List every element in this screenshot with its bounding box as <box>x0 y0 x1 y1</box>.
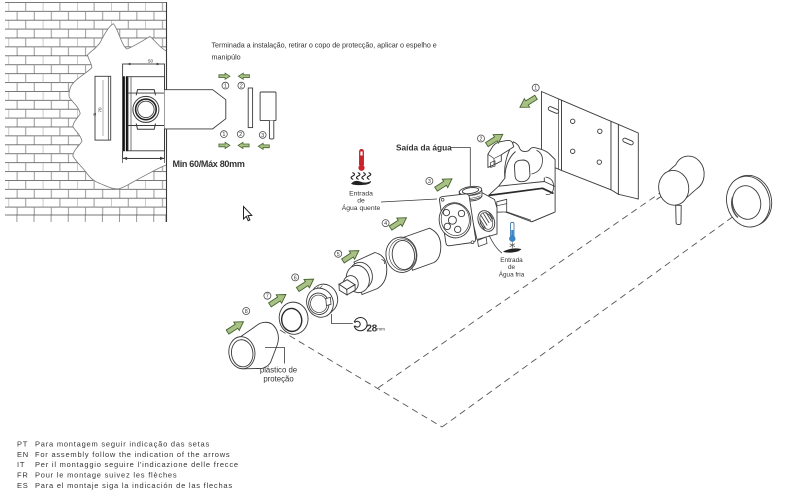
svg-text:For assembly follow the indica: For assembly follow the indication of th… <box>35 450 230 459</box>
svg-text:Saída da água: Saída da água <box>396 143 452 153</box>
svg-text:IT: IT <box>17 460 25 469</box>
svg-text:Entrada: Entrada <box>349 191 373 198</box>
svg-text:de: de <box>508 264 516 271</box>
svg-text:3: 3 <box>428 179 431 185</box>
svg-text:1: 1 <box>534 86 537 92</box>
svg-text:de: de <box>357 198 365 205</box>
svg-text:⌀: ⌀ <box>93 112 96 118</box>
svg-text:50: 50 <box>148 59 154 64</box>
svg-text:28: 28 <box>367 323 378 334</box>
svg-text:Água quente: Água quente <box>342 203 381 212</box>
svg-text:5: 5 <box>337 252 340 258</box>
svg-text:6: 6 <box>294 275 297 281</box>
svg-text:2: 2 <box>240 84 243 90</box>
svg-text:ES: ES <box>17 481 29 490</box>
svg-text:PT: PT <box>17 439 28 448</box>
svg-text:Per il montaggio seguire l'ind: Per il montaggio seguire l'indicazione d… <box>35 460 239 469</box>
svg-text:manipúlo: manipúlo <box>212 53 241 62</box>
svg-text:2: 2 <box>480 137 483 143</box>
svg-text:Entrada: Entrada <box>500 257 523 264</box>
svg-text:plástico de: plástico de <box>260 366 297 375</box>
svg-text:4: 4 <box>384 221 387 227</box>
svg-text:70: 70 <box>98 107 103 113</box>
svg-text:FR: FR <box>17 471 29 480</box>
svg-text:1: 1 <box>222 132 225 138</box>
svg-text:8: 8 <box>245 309 248 315</box>
svg-text:Pour le montage suivez les flè: Pour le montage suivez les flèches <box>35 471 177 480</box>
svg-text:2: 2 <box>239 132 242 138</box>
svg-text:proteção: proteção <box>263 375 294 384</box>
svg-text:mm: mm <box>377 327 385 332</box>
svg-text:Min 60/Máx 80mm: Min 60/Máx 80mm <box>173 159 245 169</box>
svg-text:Para el montaje siga la indica: Para el montaje siga la indicación de la… <box>35 481 233 490</box>
svg-text:Para montagem seguir indicação: Para montagem seguir indicação das setas <box>35 439 210 448</box>
svg-text:7: 7 <box>266 294 269 300</box>
svg-text:Terminada a instalação, retira: Terminada a instalação, retirar o copo d… <box>212 41 437 50</box>
svg-text:3: 3 <box>261 133 264 139</box>
svg-text:EN: EN <box>17 450 29 459</box>
svg-text:1: 1 <box>224 84 227 90</box>
svg-text:Água fria: Água fria <box>499 270 525 279</box>
